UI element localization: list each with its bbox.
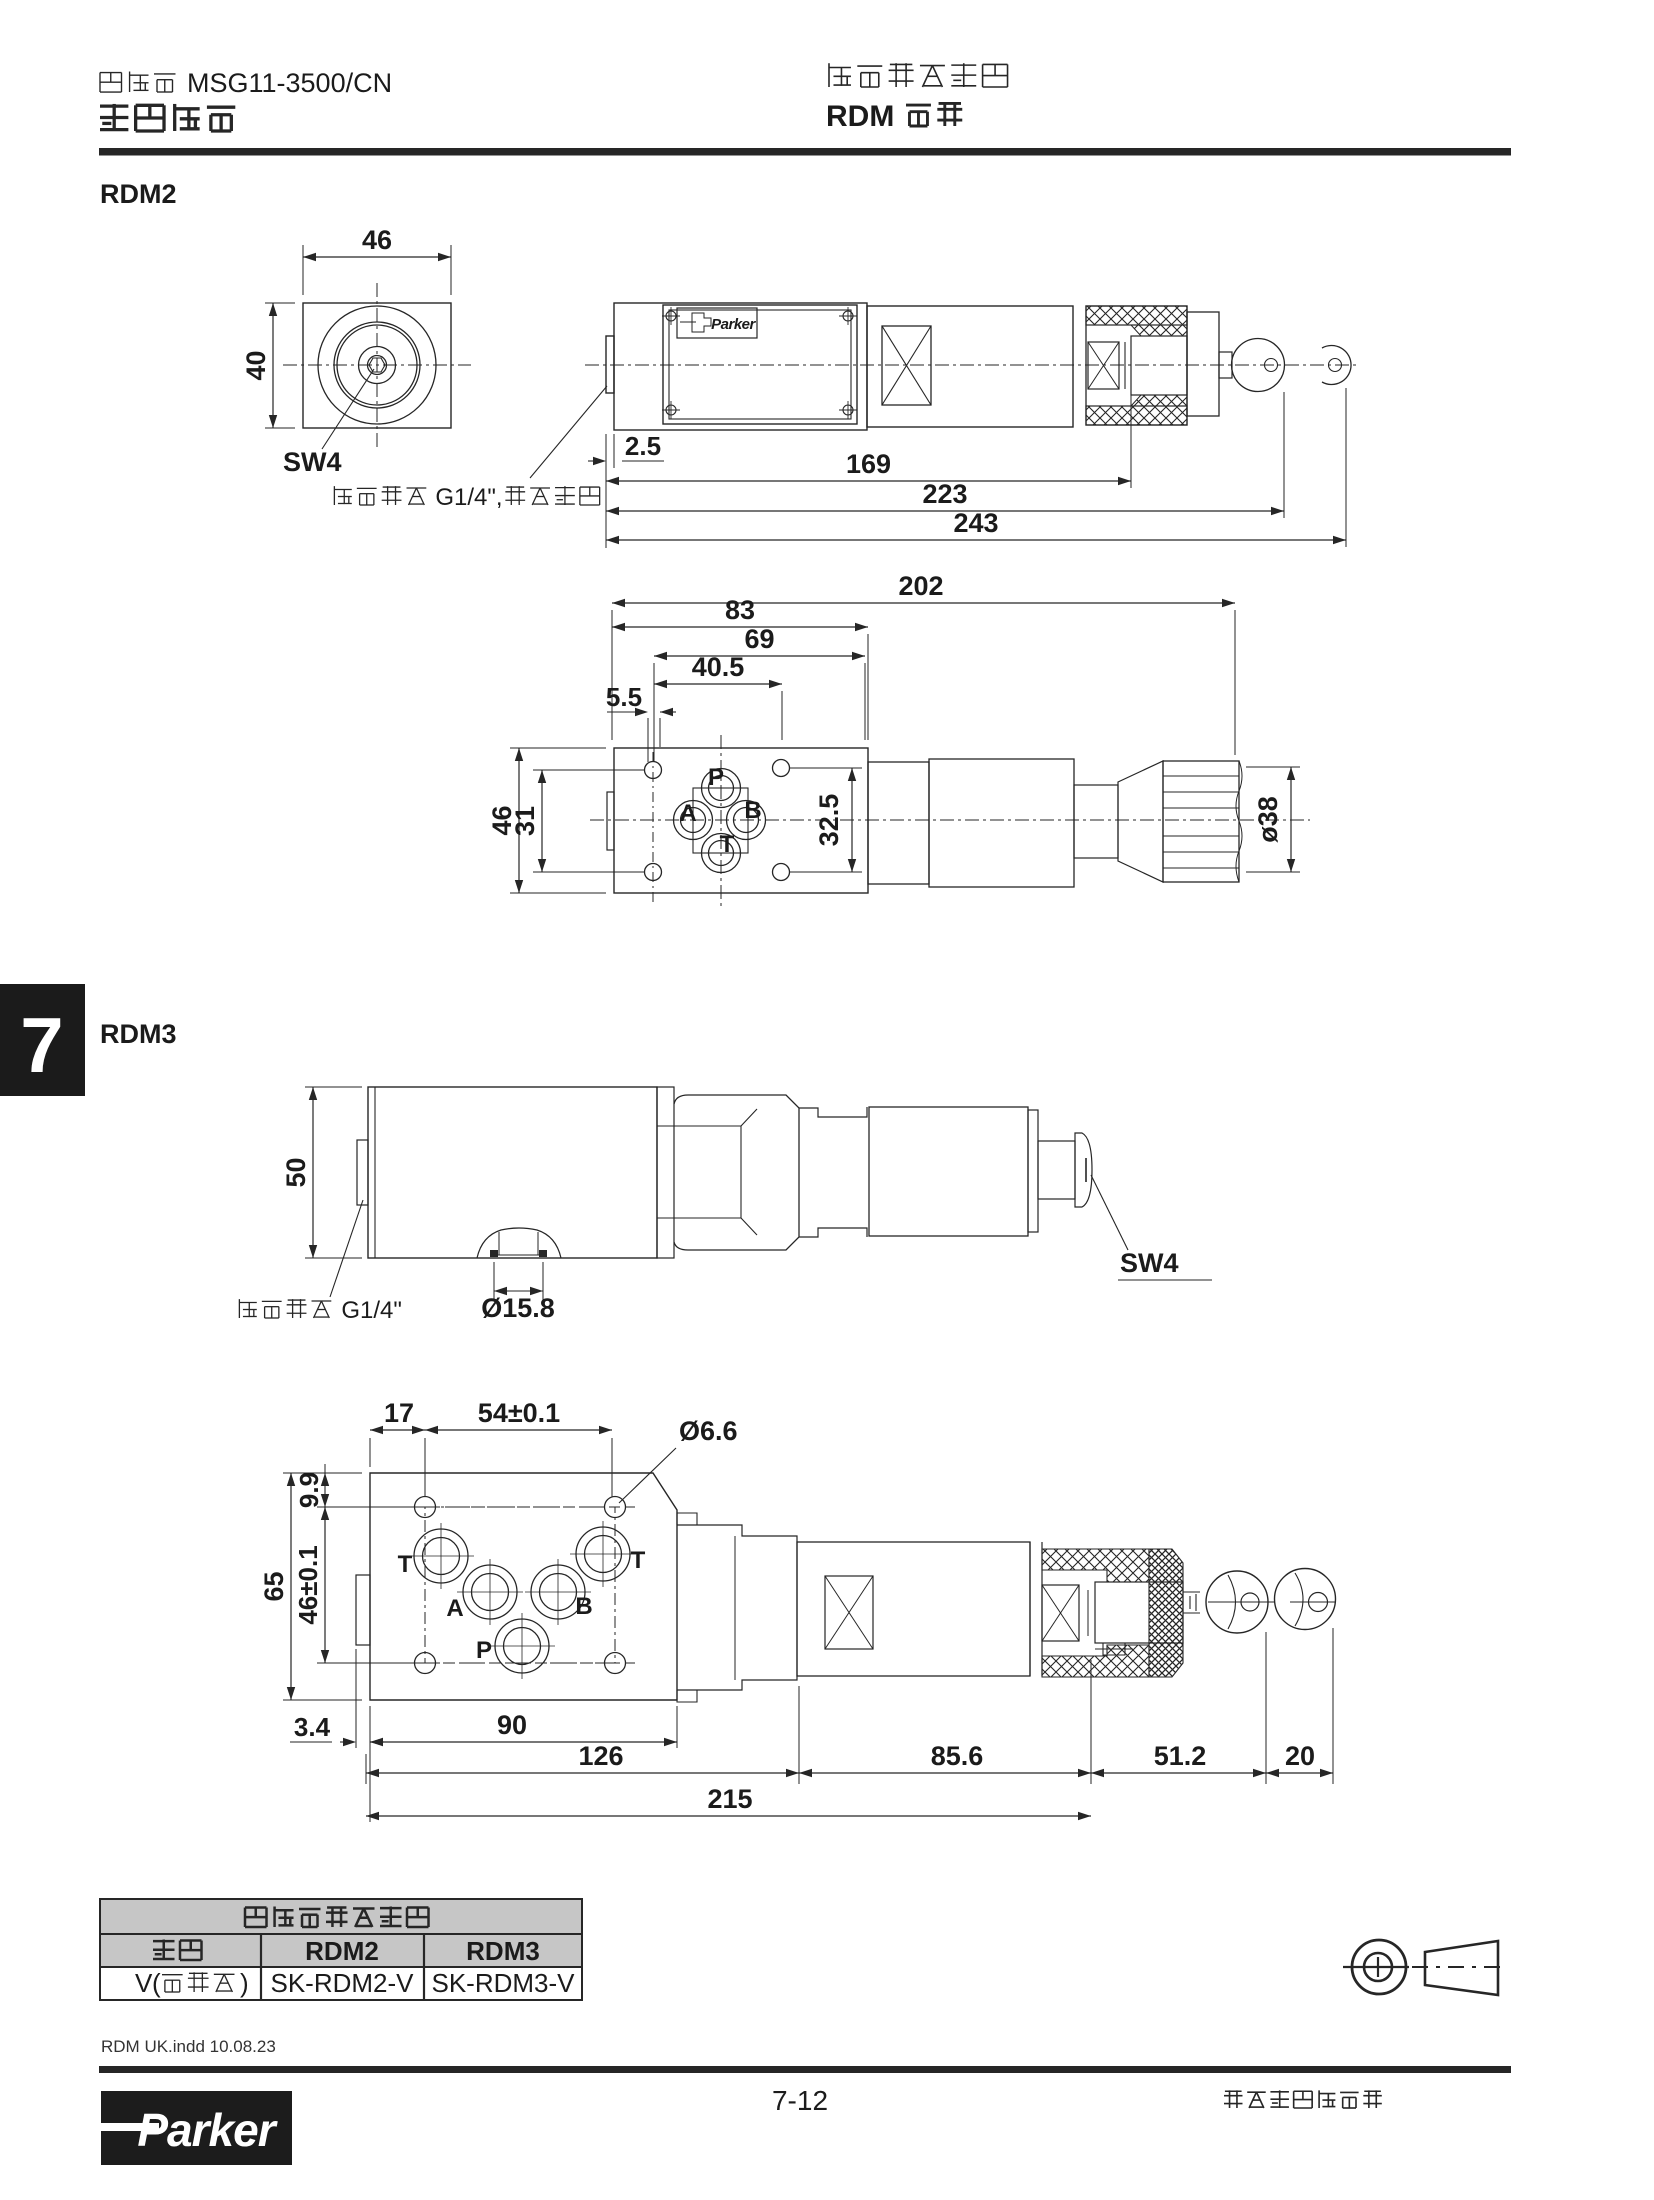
svg-text:T: T (631, 1547, 646, 1574)
svg-text:RDM UK.indd 10.08.23: RDM UK.indd 10.08.23 (101, 2037, 276, 2056)
svg-text:7: 7 (20, 1001, 63, 1089)
svg-text:(: ( (152, 1968, 161, 1998)
svg-text:T: T (720, 831, 735, 858)
svg-text:65: 65 (259, 1571, 289, 1601)
svg-text:54±0.1: 54±0.1 (478, 1398, 560, 1428)
svg-text:90: 90 (497, 1710, 527, 1740)
svg-text:223: 223 (922, 479, 967, 509)
svg-text:50: 50 (281, 1157, 311, 1187)
svg-text:RDM: RDM (826, 100, 894, 133)
svg-text:5.5: 5.5 (606, 682, 642, 712)
svg-text:202: 202 (898, 571, 943, 601)
svg-text:9.9: 9.9 (294, 1472, 324, 1508)
svg-text:A: A (446, 1595, 463, 1622)
svg-text:B: B (575, 1593, 592, 1620)
svg-text:46±0.1: 46±0.1 (293, 1545, 323, 1624)
svg-text:RDM2: RDM2 (100, 179, 177, 209)
svg-text:46: 46 (362, 225, 392, 255)
svg-text:SK-RDM3-V: SK-RDM3-V (431, 1968, 575, 1998)
svg-text:3.4: 3.4 (294, 1712, 331, 1742)
svg-text:7-12: 7-12 (772, 2085, 828, 2116)
svg-text:Parker: Parker (711, 316, 756, 333)
svg-text:RDM3: RDM3 (466, 1936, 540, 1966)
svg-text:69: 69 (744, 624, 774, 654)
svg-text:32.5: 32.5 (814, 794, 844, 847)
svg-text:T: T (398, 1551, 413, 1578)
svg-text:Ø6.6: Ø6.6 (679, 1416, 738, 1446)
svg-text:20: 20 (1285, 1741, 1315, 1771)
svg-text:17: 17 (384, 1398, 414, 1428)
svg-text:51.2: 51.2 (1154, 1741, 1207, 1771)
svg-text:P: P (708, 764, 724, 791)
svg-text:G1/4",: G1/4", (435, 484, 502, 511)
svg-text:40.5: 40.5 (692, 652, 745, 682)
svg-text:A: A (679, 800, 696, 827)
svg-text:2.5: 2.5 (625, 431, 661, 461)
svg-text:ø38: ø38 (1253, 796, 1283, 843)
svg-text:126: 126 (578, 1741, 623, 1771)
svg-text:MSG11-3500/CN: MSG11-3500/CN (187, 68, 392, 98)
svg-text:SK-RDM2-V: SK-RDM2-V (270, 1968, 414, 1998)
svg-text:SW4: SW4 (1120, 1248, 1179, 1278)
svg-text:RDM3: RDM3 (100, 1019, 177, 1049)
svg-text:215: 215 (707, 1784, 752, 1814)
svg-text:85.6: 85.6 (931, 1741, 984, 1771)
svg-text:P: P (476, 1637, 492, 1664)
svg-text:SW4: SW4 (283, 447, 342, 477)
svg-text:83: 83 (725, 595, 755, 625)
svg-text:G1/4": G1/4" (341, 1297, 402, 1324)
svg-text:Ø15.8: Ø15.8 (481, 1293, 555, 1323)
svg-text:): ) (240, 1968, 249, 1998)
svg-text:V: V (135, 1968, 153, 1998)
svg-text:169: 169 (846, 449, 891, 479)
svg-text:243: 243 (953, 508, 998, 538)
svg-text:40: 40 (241, 350, 271, 380)
svg-text:31: 31 (510, 806, 540, 836)
svg-text:RDM2: RDM2 (305, 1936, 379, 1966)
